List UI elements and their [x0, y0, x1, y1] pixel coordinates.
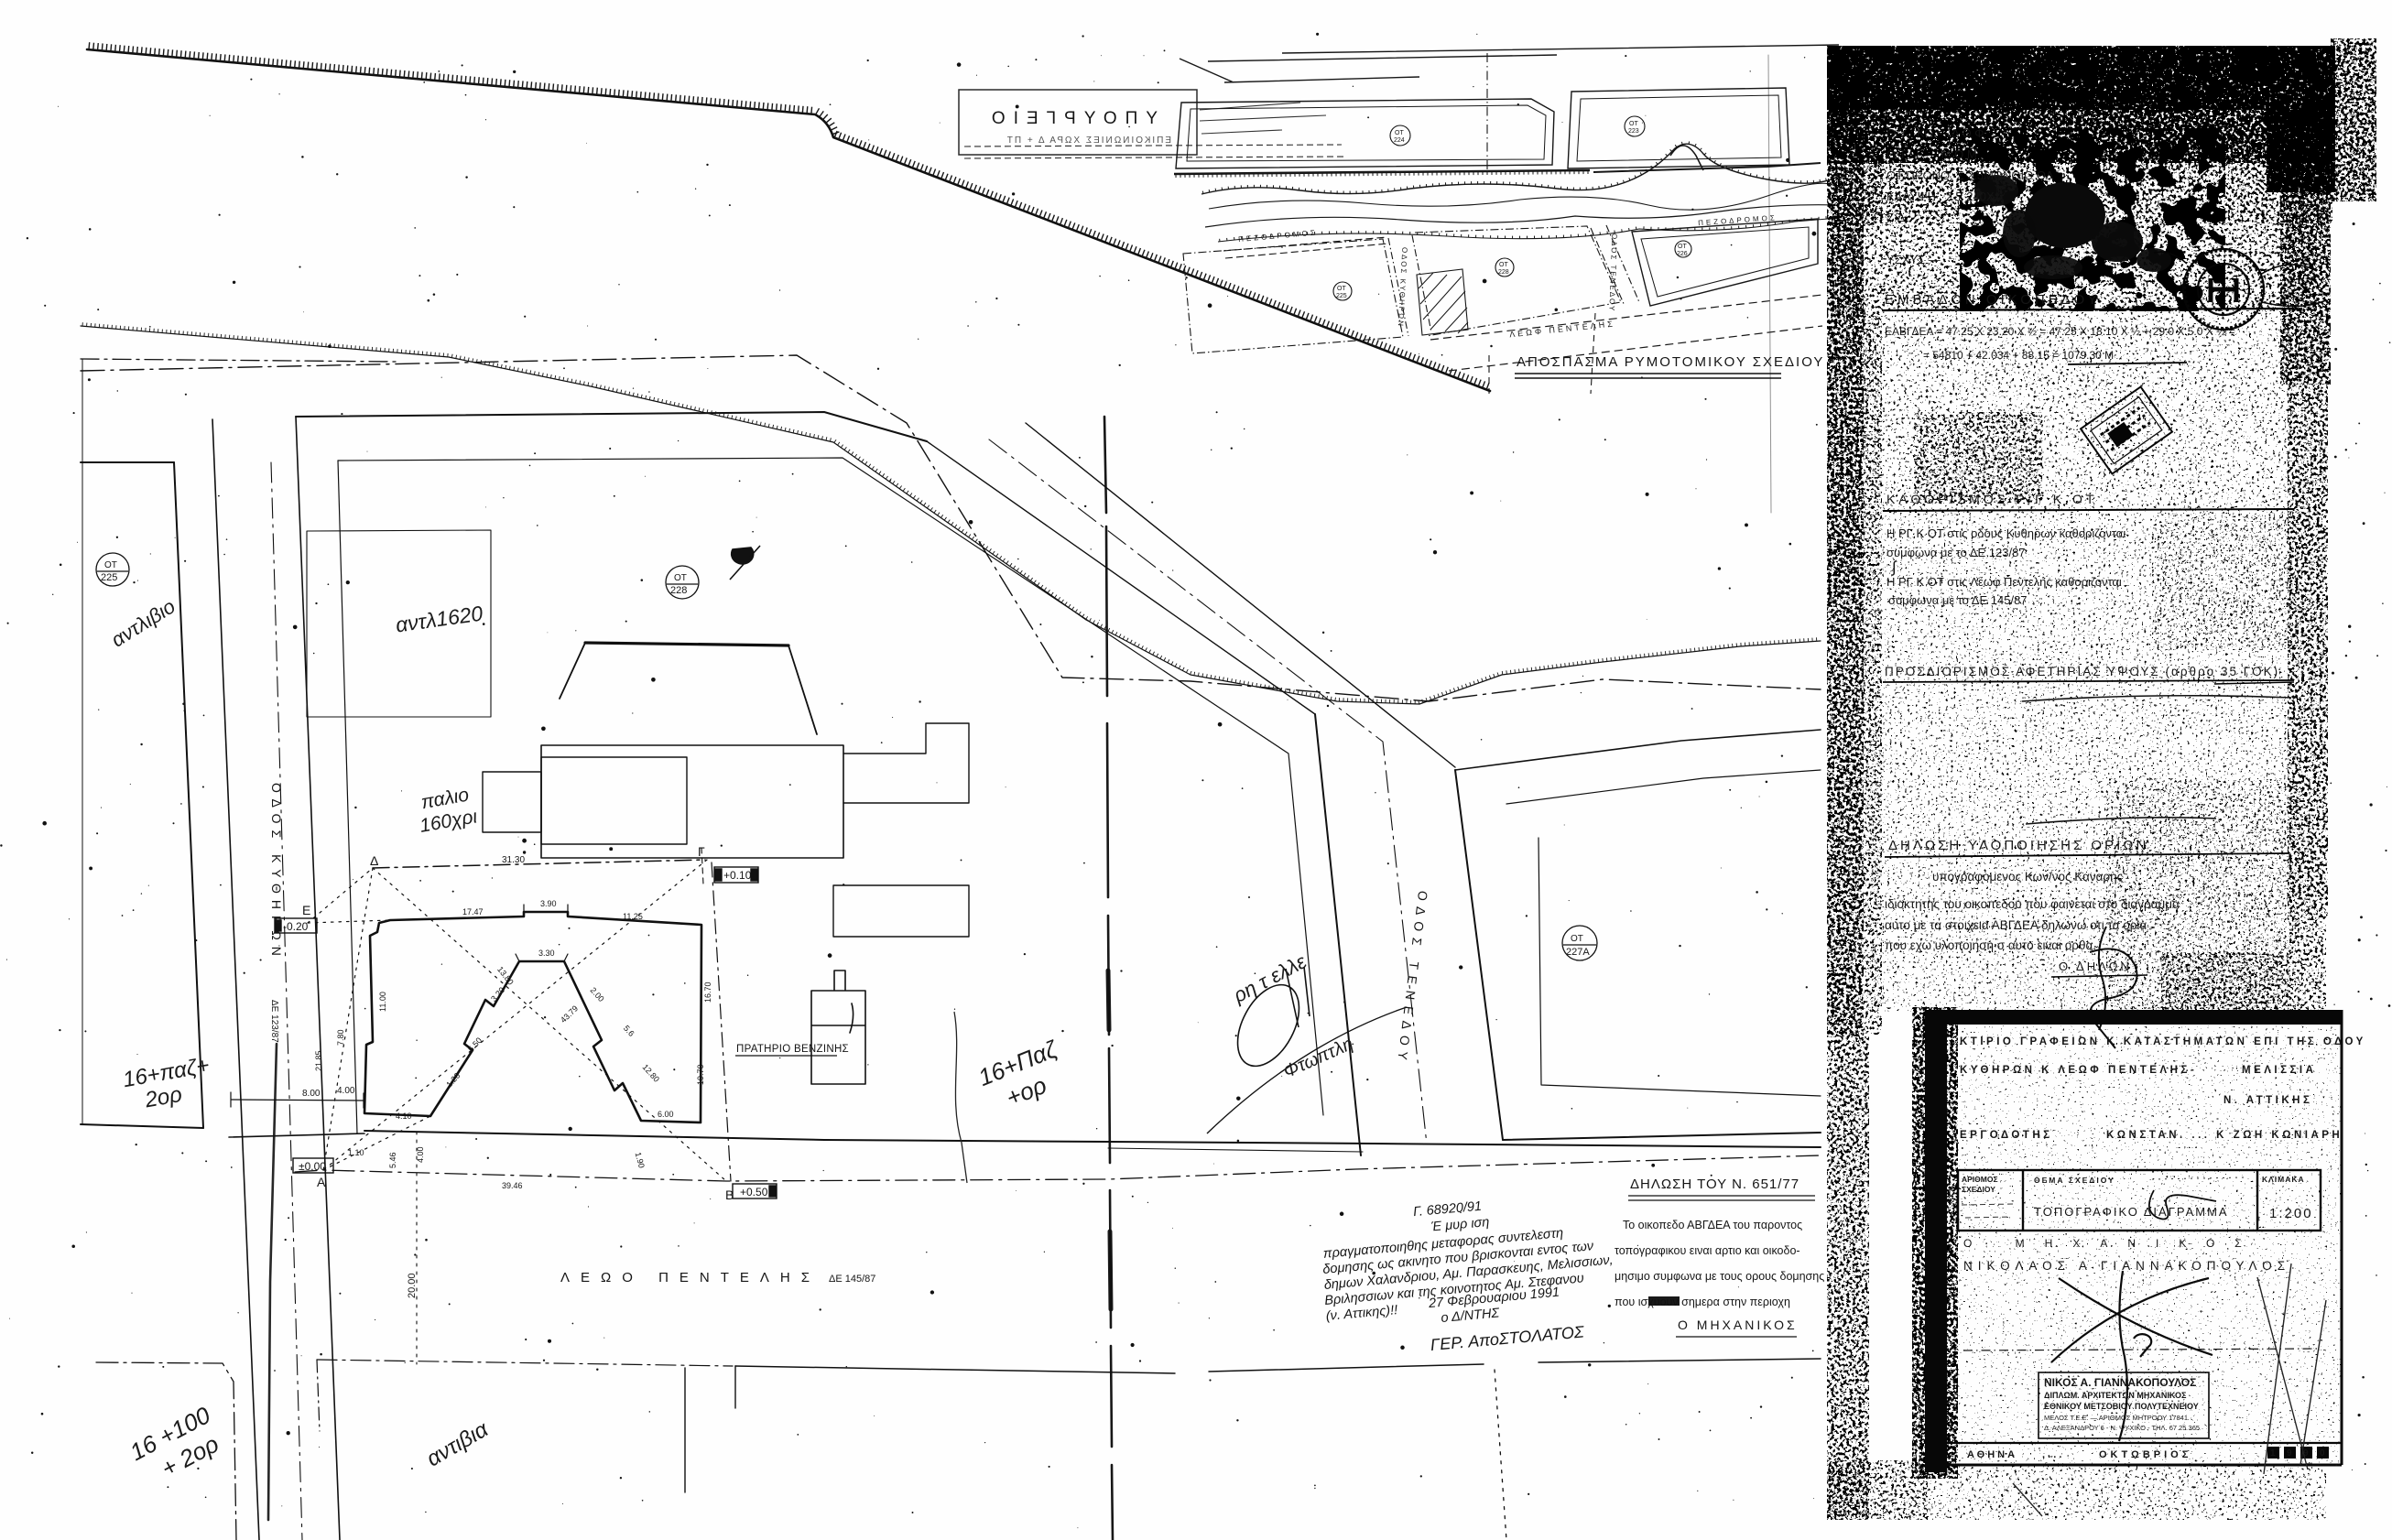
svg-text:Β: Β: [725, 1188, 734, 1202]
svg-text:ΤΟΠΟΓΡΑΦΙΚΟ ΔΙΑΓΡΑΜΜΑ: ΤΟΠΟΓΡΑΦΙΚΟ ΔΙΑΓΡΑΜΜΑ: [2034, 1205, 2229, 1219]
svg-text:ΘΕΜΑ ΣΧΕΔΙΟΥ: ΘΕΜΑ ΣΧΕΔΙΟΥ: [2034, 1176, 2115, 1185]
svg-text:9: 9: [2287, 1448, 2292, 1459]
svg-text:τοπογραφικου ειναι αρτιο κα: τοπογραφικου ειναι αρτιο και οικοδο-: [1615, 1244, 1800, 1257]
svg-text:Ο ΔΗΛΩΝ: Ο ΔΗΛΩΝ: [2059, 960, 2132, 973]
svg-text:Ο ΜΗΧΑΝΙΚΟΣ: Ο ΜΗΧΑΝΙΚΟΣ: [1678, 1318, 1798, 1332]
svg-text:1:200: 1:200: [2269, 1206, 2313, 1221]
svg-text:ΔΕ 123/87: ΔΕ 123/87: [269, 1000, 279, 1043]
svg-text:Σ.Δ: Σ.Δ: [1886, 211, 1906, 224]
svg-text:ΥΠΟΥΡΓΕΙΟ: ΥΠΟΥΡΓΕΙΟ: [984, 109, 1158, 128]
svg-text:+0.10: +0.10: [723, 869, 752, 882]
svg-text:ΜΕΛΙΣΣΙΑ: ΜΕΛΙΣΣΙΑ: [2242, 1065, 2316, 1076]
svg-text:±0.00: ±0.00: [299, 1160, 326, 1173]
svg-text:. . . .: . . . .: [2042, 1449, 2061, 1460]
svg-text:Ε: Ε: [302, 903, 310, 917]
svg-text:= 54810 + 42.034 + 88.15 =: = 54810 + 42.034 + 88.15 = 1079.30 Μ: [1923, 349, 2114, 362]
svg-text:ΟΤ: ΟΤ: [1395, 130, 1404, 136]
svg-text:4.00: 4.00: [337, 1086, 355, 1096]
svg-text:ΚΥΘΗΡΩΝ Κ ΛΕΩΦ ΠΕΝΤΕΛΗΣ: ΚΥΘΗΡΩΝ Κ ΛΕΩΦ ΠΕΝΤΕΛΗΣ: [1960, 1065, 2191, 1076]
svg-text:ΚΤΙΡΙΟ ΓΡΑΦΕΙΩΝ Κ ΚΑΤΑΣΤΗΜΑΤ: ΚΤΙΡΙΟ ΓΡΑΦΕΙΩΝ Κ ΚΑΤΑΣΤΗΜΑΤΩΝ ΕΠΙ ΤΗΣ Ο…: [1960, 1036, 2366, 1047]
svg-text:Ο ΜΗΧΑΝΙΚΟΣ: Ο ΜΗΧΑΝΙΚΟΣ: [1963, 1237, 2262, 1250]
svg-text:ΑΡΙΘΜΟΣ: ΑΡΙΘΜΟΣ: [1962, 1175, 1998, 1184]
svg-text:ΟΤ: ΟΤ: [1678, 244, 1687, 250]
svg-text:Ν. ΑΤΤΙΚΗΣ: Ν. ΑΤΤΙΚΗΣ: [2223, 1095, 2312, 1106]
svg-text:ΥΣΧΥΣ —: ΥΣΧΥΣ —: [1886, 253, 1941, 266]
svg-text:Η ΡΓ Κ ΟΤ στις Λεωφ Πεντε: Η ΡΓ Κ ΟΤ στις Λεωφ Πεντελης καθοριζοντα…: [1886, 575, 2122, 589]
svg-text:ΠΡΟΣΔΙΟΡΙΣΜΟΣ ΑΦΕΤΗΡΙΑΣ ΥΨΟΥΣ: ΠΡΟΣΔΙΟΡΙΣΜΟΣ ΑΦΕΤΗΡΙΑΣ ΥΨΟΥΣ (αρθρο 35 …: [1885, 665, 2279, 678]
svg-text:Θ.Υ : ΚΟ — Δ Ο Φ: Θ.Υ : ΚΟ — Δ Ο Φ: [1886, 126, 1984, 140]
svg-text:ΕΡΓΟΔΟΤΗΣ: ΕΡΓΟΔΟΤΗΣ: [1960, 1130, 2053, 1141]
svg-text:227Α: 227Α: [1566, 947, 1590, 958]
svg-text:0: 0: [2320, 1448, 2325, 1459]
svg-text:226: 226: [1677, 251, 1688, 257]
svg-text:ΟΤ: ΟΤ: [1571, 934, 1583, 944]
svg-text:ΝΙΚΟΣ Α. ΓΙΑΝΝΑΚΟΠΟΥΛΟΣ: ΝΙΚΟΣ Α. ΓΙΑΝΝΑΚΟΠΟΥΛΟΣ: [2044, 1376, 2196, 1389]
svg-text:Γ: Γ: [698, 844, 705, 859]
svg-text:21.85: 21.85: [314, 1050, 323, 1071]
svg-text:ΕΜΒΑΔΟΝ ΟΙΚΟΠΕΔΟΥ: ΕΜΒΑΔΟΝ ΟΙΚΟΠΕΔΟΥ: [1885, 292, 2101, 308]
svg-text:228: 228: [1498, 269, 1509, 276]
svg-text:19.70: 19.70: [696, 1064, 705, 1085]
svg-text:ΟΤ: ΟΤ: [1337, 286, 1346, 292]
svg-text:-0.20: -0.20: [283, 920, 309, 933]
svg-text:Δ: Δ: [370, 853, 378, 868]
svg-text:223: 223: [1628, 128, 1639, 135]
svg-text:224: 224: [1394, 137, 1405, 144]
svg-text:5.46: 5.46: [388, 1152, 397, 1168]
svg-text:μησιμο συμφωνα με τους ορο: μησιμο συμφωνα με τους ορους δομησης: [1615, 1270, 1824, 1283]
svg-text:ΚΩΝΣΤΑΝ. ... Κ ΖΩΗ ΚΩΝΙΑΡΗ: ΚΩΝΣΤΑΝ. ... Κ ΖΩΗ ΚΩΝΙΑΡΗ: [2106, 1130, 2343, 1141]
svg-text:ΝΙΚΟΛΑΟΣ Α ΓΙΑΝΝΑΚΟΠΟΥΛΟΣ: ΝΙΚΟΛΑΟΣ Α ΓΙΑΝΝΑΚΟΠΟΥΛΟΣ: [1963, 1259, 2290, 1273]
svg-text:ΕΑΒΓΔΕΑ = 47.25 Χ 23.20 Χ ½: ΕΑΒΓΔΕΑ = 47.25 Χ 23.20 Χ ½ = 47.25 Χ 18…: [1885, 325, 2234, 338]
svg-text:3.90: 3.90: [540, 899, 557, 908]
svg-text:ΚΑΛΥΨΗ : Σ 7 240Χ: ΚΑΛΥΨΗ : Σ 7 240Χ: [1886, 190, 1995, 203]
svg-text:Η ΡΓ Κ ΟΤ στις οδους Κυθηρω: Η ΡΓ Κ ΟΤ στις οδους Κυθηρων καθοριζοντα…: [1886, 526, 2126, 540]
svg-text:ΜΕΛΟΣ Τ.Ε.Ε. — ΑΡΙΘΜΟΣ ΜΗΤ: ΜΕΛΟΣ Τ.Ε.Ε. — ΑΡΙΘΜΟΣ ΜΗΤΡΟΟΥ 17841: [2044, 1414, 2188, 1422]
svg-text:225: 225: [101, 572, 117, 583]
svg-text:225: 225: [1336, 293, 1347, 299]
svg-text:8.00: 8.00: [302, 1089, 321, 1099]
svg-text:ΑΘΗΝΑ: ΑΘΗΝΑ: [1967, 1449, 2017, 1460]
svg-text:6.00: 6.00: [658, 1110, 674, 1119]
svg-text:1: 1: [2270, 1448, 2276, 1459]
svg-text:+0.50: +0.50: [740, 1186, 768, 1198]
svg-text:ΟΤ: ΟΤ: [1629, 121, 1638, 127]
svg-text:Ο.Τ : Γ — Μ Ο Μ: Ο.Τ : Γ — Μ Ο Μ: [1886, 147, 1977, 161]
svg-text:-: -: [2191, 1065, 2197, 1076]
svg-text:ΟΚΤΩΒΡΙΟΣ: ΟΚΤΩΒΡΙΟΣ: [2099, 1449, 2191, 1460]
svg-text:ΑΠΟΣΠΑΣΜΑ ΡΥΜΟΤΟΜΙΚΟΥ ΣΧΕΔΙΟΥ: ΑΠΟΣΠΑΣΜΑ ΡΥΜΟΤΟΜΙΚΟΥ ΣΧΕΔΙΟΥ: [1517, 354, 1824, 370]
svg-text:ΟΤ: ΟΤ: [674, 573, 687, 583]
svg-text:που εχω υλοποιηση σ αυτ: που εχω υλοποιηση σ αυτο ειναι ορθα.: [1885, 938, 2096, 952]
svg-text:31.30: 31.30: [502, 855, 525, 865]
svg-text:ΕΠΙΚΟΙΝΩΝΙΕΣ ΧΩΡΑ Δ + ΠΤ: ΕΠΙΚΟΙΝΩΝΙΕΣ ΧΩΡΑ Δ + ΠΤ: [1006, 136, 1171, 146]
svg-text:4.10: 4.10: [396, 1112, 412, 1121]
svg-text:ΛΕΩΟ ΠΕΝΤΕΛΗΣ: ΛΕΩΟ ΠΕΝΤΕΛΗΣ: [560, 1270, 821, 1285]
svg-text:228: 228: [670, 585, 687, 596]
svg-text:ΣΧΕΔΙΟΥ: ΣΧΕΔΙΟΥ: [1962, 1185, 1995, 1194]
svg-text:20.00: 20.00: [407, 1273, 418, 1298]
svg-text:ΔΗΛΩΣΗ ΥΛΟΠΟΙΗΣΗΣ ΟΡΙΩΝ: ΔΗΛΩΣΗ ΥΛΟΠΟΙΗΣΗΣ ΟΡΙΩΝ: [1888, 838, 2148, 853]
svg-text:ΚΛΙΜΑΚΑ: ΚΛΙΜΑΚΑ: [2262, 1175, 2305, 1184]
svg-text:ΠΡΑΤΗΡΙΟ ΒΕΝΖΙΝΗΣ: ΠΡΑΤΗΡΙΟ ΒΕΝΖΙΝΗΣ: [736, 1044, 849, 1055]
svg-text:39.46: 39.46: [502, 1181, 523, 1190]
svg-text:υπογραφομενος Κων/νος Καναρη: υπογραφομενος Κων/νος Καναρης: [1932, 870, 2124, 884]
svg-text:ΔΗΛΩΣΗ ΤΟΥ Ν. 651/77: ΔΗΛΩΣΗ ΤΟΥ Ν. 651/77: [1630, 1177, 1799, 1192]
svg-text:11.00: 11.00: [378, 992, 387, 1012]
svg-text:Το οικοπεδο ΑΒΓΔΕΑ του π: Το οικοπεδο ΑΒΓΔΕΑ του παροντος: [1623, 1219, 1802, 1231]
svg-text:ΚΑΘΟΡΙΣΜΟΣ Ρ Γ Κ ΟΤ: ΚΑΘΟΡΙΣΜΟΣ Ρ Γ Κ ΟΤ: [1886, 492, 2097, 506]
svg-text:ΔΕ 145/87: ΔΕ 145/87: [829, 1274, 875, 1285]
svg-text:αυτο με τα στοιχεια ΑΒΓΔΕΑ: αυτο με τα στοιχεια ΑΒΓΔΕΑ δηλωνω οτι τα…: [1885, 918, 2147, 932]
svg-text:ΕΘΝΙΚΟΥ ΜΕΤΣΟΒΙΟΥ ΠΟΛΥΤΕΧΝΕΙ: ΕΘΝΙΚΟΥ ΜΕΤΣΟΒΙΟΥ ΠΟΛΥΤΕΧΝΕΙΟΥ: [2044, 1402, 2199, 1411]
svg-text:11.25: 11.25: [623, 912, 643, 921]
svg-text:ΔΙΠΛΩΜ. ΑΡΧΙΤΕΚΤΩΝ ΜΗΧΑΝΙΚΟΣ: ΔΙΠΛΩΜ. ΑΡΧΙΤΕΚΤΩΝ ΜΗΧΑΝΙΚΟΣ: [2044, 1391, 2187, 1400]
svg-text:συμφωνα με το ΔΕ 145/87: συμφωνα με το ΔΕ 145/87: [1888, 593, 2028, 607]
svg-text:1.10: 1.10: [348, 1148, 364, 1157]
svg-text:συμφωνα με το ΔΕ 123/87: συμφωνα με το ΔΕ 123/87: [1886, 546, 2026, 559]
svg-text:ΟΤ: ΟΤ: [1499, 262, 1508, 268]
svg-text:ΟΔΟΣ ΚΥΘΗΡΩΝ: ΟΔΟΣ ΚΥΘΗΡΩΝ: [269, 783, 284, 962]
svg-text:16.70: 16.70: [703, 981, 712, 1003]
svg-text:ΟΤ ΠΡΟΝΟ. Σ 2.5ΜΟΝΟΙΟ ΟΛ: ΟΤ ΠΡΟΝΟ. Σ 2.5ΜΟΝΟΙΟ ΟΛ: [1886, 168, 2054, 182]
svg-text:3.30: 3.30: [538, 949, 555, 958]
svg-text:Α: Α: [317, 1175, 326, 1189]
svg-text:ΟΤ: ΟΤ: [104, 560, 117, 570]
svg-text:που ισχυουν σημερα στην πε: που ισχυουν σημερα στην περιοχη: [1615, 1296, 1790, 1308]
svg-text:Δ. ΑΛΕΞΑΝΔΡΟΥ 6 - Ν. ΨΥΧΙΚΟ -: Δ. ΑΛΕΞΑΝΔΡΟΥ 6 - Ν. ΨΥΧΙΚΟ - ΤΗΛ. 67 25…: [2044, 1424, 2200, 1432]
svg-text:17.47: 17.47: [462, 907, 484, 916]
svg-text:4.00: 4.00: [416, 1146, 425, 1163]
svg-text:ιδιοκτητης του οικοπεδου πο: ιδιοκτητης του οικοπεδου που φαινεται στ…: [1885, 897, 2180, 911]
svg-text:7.80: 7.80: [336, 1029, 345, 1046]
